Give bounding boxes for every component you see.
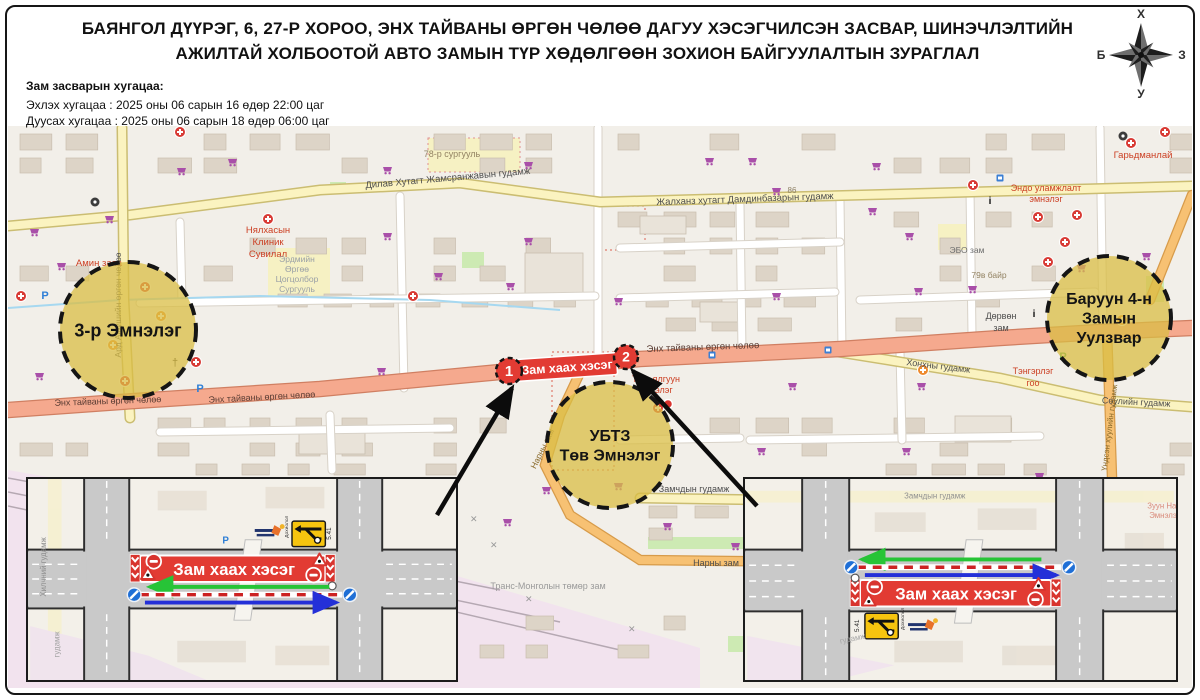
building: [1032, 266, 1055, 281]
no-entry-sign-icon: [867, 580, 882, 595]
schedule-start: Эхлэх хугацаа : 2025 оны 06 сарын 16 өдө…: [26, 97, 330, 113]
closure-marker-2: 2: [614, 345, 638, 369]
med-icon: [16, 291, 27, 302]
street-label: 78-р сургууль: [424, 149, 481, 159]
highlight-zone-ubtz-central-hospital: УБТЗТөв Эмнэлэг: [547, 382, 673, 508]
intersection-diagram-right: Зам хаах хэсэг 5.41 Дохиолол Замчдын гуд…: [743, 477, 1178, 682]
building: [342, 158, 367, 173]
inset-street-label: Зуун Наст: [1147, 501, 1178, 510]
building: [426, 464, 456, 475]
detour-code: 5.41: [326, 527, 333, 540]
inset-street-label: P: [222, 536, 229, 547]
compass-south-label: У: [1137, 87, 1145, 99]
building: [758, 318, 791, 331]
building: [1170, 134, 1192, 150]
zone-label: УБТЗ: [590, 428, 631, 445]
zone-label: Баруун 4-н: [1066, 291, 1152, 308]
park-icon: [41, 290, 48, 302]
schedule-block: Зам засварын хугацаа: Эхлэх хугацаа : 20…: [26, 78, 330, 129]
street-label: Эндо уламжлалт: [1011, 183, 1082, 193]
zone-circle: [547, 382, 673, 508]
building: [288, 464, 309, 475]
sign-caption: Дохиолол: [900, 608, 906, 630]
bus-icon: [825, 347, 832, 354]
wheel-icon: [1119, 132, 1128, 141]
street-label: 86: [788, 186, 797, 195]
svg-text:✕: ✕: [628, 624, 636, 634]
inset-right-banner-label: Зам хаах хэсэг: [895, 585, 1017, 604]
building: [526, 134, 552, 150]
building: [250, 134, 280, 150]
intersection-diagram-left: Зам хаах хэсэг Дохиолол 5.41 Хилчний гуд…: [26, 477, 458, 682]
inset-street-label: Замчдын гудамж: [904, 492, 966, 501]
street-label: Цогцолбор: [276, 274, 319, 284]
no-entry-sign-icon: [1028, 592, 1043, 607]
street-label: ЭБО зам: [949, 245, 984, 255]
building: [896, 318, 922, 331]
closure-marker-2-number: 2: [622, 349, 630, 365]
road: [400, 196, 404, 388]
building: [434, 238, 456, 254]
street-label: Клиник: [252, 237, 284, 248]
building: [242, 464, 269, 475]
svg-text:✕: ✕: [470, 514, 478, 524]
med-icon: [408, 291, 419, 302]
building: [1032, 134, 1064, 150]
building: [664, 616, 685, 630]
building: [640, 216, 686, 234]
street-label: Замчдын гудамж: [659, 484, 729, 494]
regulation-sign-icon: [844, 560, 858, 574]
compass-rose: Х З У Б: [1095, 7, 1187, 99]
no-entry-sign-icon: [306, 568, 321, 583]
building: [695, 506, 728, 518]
building: [342, 266, 363, 281]
building: [940, 158, 970, 173]
building: [480, 266, 505, 281]
building: [894, 212, 919, 227]
barrier-chevrons-icon: [850, 579, 860, 606]
building: [1170, 443, 1192, 456]
building: [20, 266, 48, 281]
med-icon: [191, 357, 202, 368]
compass-east-label: З: [1178, 48, 1186, 62]
barrier-chevrons-icon: [1051, 579, 1061, 606]
closure-marker-1: 1: [496, 358, 522, 384]
building: [66, 443, 88, 456]
building: [986, 158, 1012, 173]
med-icon: [968, 180, 979, 191]
street-label: гоо: [1026, 378, 1039, 388]
road: [750, 436, 1040, 440]
inset-right-closure: Зам хаах хэсэг: [844, 559, 1075, 607]
inset-left-closure: Зам хаах хэсэг: [127, 554, 356, 603]
svg-text:✕: ✕: [525, 594, 533, 604]
building: [480, 134, 512, 150]
building: [66, 158, 93, 173]
building: [710, 134, 739, 150]
closure-endpoint-dot: [851, 574, 859, 582]
building: [342, 238, 366, 254]
building: [196, 464, 217, 475]
med-icon: [1060, 237, 1071, 248]
page-title: БАЯНГОЛ ДҮҮРЭГ, 6, 27-Р ХОРОО, ЭНХ ТАЙВА…: [70, 16, 1085, 66]
building: [986, 134, 1006, 150]
building: [434, 443, 456, 456]
building: [978, 464, 1004, 475]
med-icon: [1072, 210, 1083, 221]
building: [526, 645, 548, 658]
street-label: зам: [993, 323, 1008, 333]
inset-street-label: Эмнэлэг: [1149, 511, 1178, 520]
street-label: Эрдмийн: [279, 254, 315, 264]
med-icon: [1160, 127, 1171, 138]
building: [618, 645, 649, 658]
closure-point-marker: [664, 400, 673, 409]
building: [525, 253, 583, 297]
building: [886, 464, 916, 475]
road: [740, 205, 742, 352]
street-label: Нарны зам: [693, 558, 739, 568]
building: [480, 645, 504, 658]
building: [250, 443, 275, 456]
building: [940, 266, 961, 281]
med-icon: [1126, 138, 1137, 149]
zone-label: Уулзвар: [1076, 330, 1141, 347]
sign-caption: Дохиолол: [284, 515, 290, 537]
zone-label: Төв Эмнэлэг: [560, 447, 661, 464]
zone-label: 3-р Эмнэлэг: [74, 320, 182, 340]
building: [20, 158, 41, 173]
info-icon: [989, 196, 992, 207]
inset-street-label: гудамж: [53, 631, 62, 658]
wheel-icon: [91, 198, 100, 207]
building: [756, 266, 777, 281]
building: [664, 266, 695, 281]
building: [802, 443, 827, 456]
building: [710, 418, 739, 433]
building: [1170, 158, 1192, 173]
building: [204, 134, 226, 150]
building: [756, 418, 789, 433]
building: [480, 418, 506, 433]
building: [802, 418, 832, 433]
info-icon: [1033, 309, 1036, 320]
street-label: Тэнгэрлэг: [1013, 366, 1054, 376]
building: [802, 134, 835, 150]
detour-sign-icon: [292, 521, 325, 546]
building: [932, 464, 966, 475]
building: [66, 134, 98, 150]
med-icon: [1033, 212, 1044, 223]
road: [330, 415, 332, 470]
inset-street-label: Хилчний гудамж: [39, 537, 48, 597]
compass-west-label: Б: [1097, 48, 1106, 62]
detour-sign-icon: [865, 613, 898, 638]
building: [894, 158, 921, 173]
schedule-heading: Зам засварын хугацаа:: [26, 78, 330, 94]
street-label: Төгс ялгуун: [632, 374, 680, 384]
building: [204, 266, 232, 281]
building: [700, 302, 740, 322]
street-label: Сургууль: [279, 284, 315, 294]
building: [1162, 464, 1184, 475]
street-label: 79в байр: [971, 270, 1006, 280]
zone-label: Замын: [1082, 311, 1136, 328]
compass-north-label: Х: [1137, 7, 1145, 21]
building: [296, 238, 327, 254]
road: [970, 190, 972, 335]
closure-marker-1-number: 1: [505, 363, 513, 380]
street-label: эмнэлэг: [1029, 194, 1063, 204]
building: [434, 134, 465, 150]
barrier-chevrons-icon: [130, 554, 140, 581]
building: [20, 443, 52, 456]
schedule-end: Дуусах хугацаа : 2025 оны 06 сарын 18 өд…: [26, 113, 330, 129]
building: [334, 464, 365, 475]
compass-star: [1109, 23, 1173, 87]
road: [840, 200, 842, 350]
inset-left-banner-label: Зам хаах хэсэг: [173, 560, 295, 579]
highlight-zone-hospital-3: 3-р Эмнэлэг: [60, 262, 196, 398]
no-entry-sign-icon: [146, 554, 161, 569]
bus-icon: [997, 175, 1004, 182]
street-label: Өргөө: [285, 264, 309, 274]
road: [160, 428, 450, 432]
building: [158, 158, 192, 173]
building: [986, 212, 1011, 227]
park-icon: [196, 383, 203, 395]
regulation-sign-icon: [343, 588, 357, 602]
building: [666, 318, 695, 331]
building: [710, 212, 735, 227]
barrier-chevrons-icon: [325, 554, 335, 581]
highlight-zone-baruun-4-intersection: Баруун 4-нЗамынУулзвар: [1047, 256, 1171, 380]
street-label: Гарьдманлай: [1114, 150, 1173, 161]
building: [649, 506, 677, 518]
regulation-sign-icon: [1062, 560, 1076, 574]
med-icon: [263, 214, 274, 225]
closure-endpoint-dot: [328, 582, 336, 590]
building: [940, 443, 968, 456]
med-icon: [1043, 257, 1054, 268]
detour-code: 5.41: [854, 619, 861, 632]
building: [158, 443, 189, 456]
building: [526, 616, 554, 630]
building: [618, 134, 639, 150]
building: [20, 134, 52, 150]
traffic-plan-page: БАЯНГОЛ ДҮҮРЭГ, 6, 27-Р ХОРОО, ЭНХ ТАЙВА…: [0, 0, 1200, 700]
street-label: Нялхасын: [246, 225, 290, 236]
street-label: Дөрвөн: [986, 311, 1017, 321]
street-label: Транс-Монголын төмөр зам: [490, 581, 605, 591]
svg-text:✕: ✕: [490, 540, 498, 550]
building: [756, 212, 789, 227]
building: [296, 134, 329, 150]
regulation-sign-icon: [127, 588, 141, 602]
